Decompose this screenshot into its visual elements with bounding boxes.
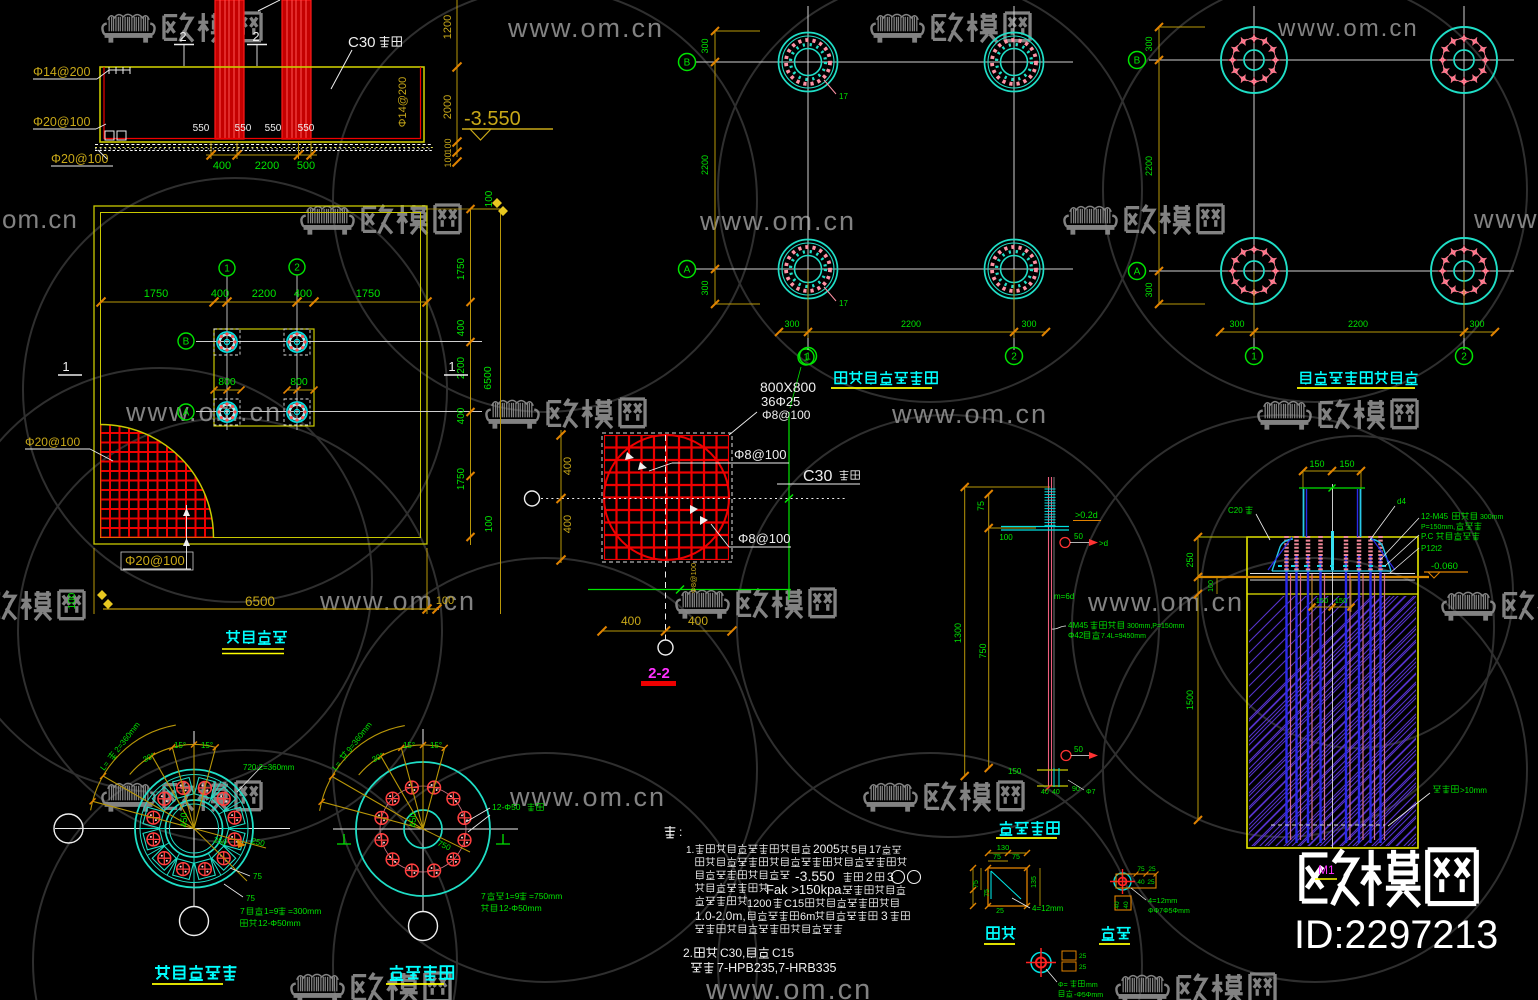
svg-text:P=150mm,: P=150mm, [1421,524,1455,531]
svg-text:300mm: 300mm [1480,514,1504,521]
svg-text:550: 550 [193,123,210,134]
svg-text:300: 300 [784,319,799,329]
svg-text:A: A [1134,267,1141,278]
svg-text:400: 400 [456,319,467,336]
svg-text:36Φ25: 36Φ25 [761,394,800,409]
svg-text:Φ20@100: Φ20@100 [33,115,90,129]
svg-text:www.om.cn: www.om.cn [705,974,872,1000]
svg-text:P.C: P.C [1421,532,1434,541]
svg-text:300: 300 [700,38,710,53]
svg-text:400: 400 [562,515,574,533]
svg-text:2005: 2005 [813,842,840,856]
svg-text:www.om.cn: www.om.cn [507,13,664,43]
svg-text:www.om.cn: www.om.cn [1087,587,1244,617]
svg-text:1750: 1750 [456,467,467,490]
svg-text:A: A [183,408,190,419]
svg-text:Φ8@100: Φ8@100 [734,447,787,462]
svg-text:1: 1 [224,264,230,275]
svg-text:Φ8@100: Φ8@100 [689,563,698,593]
svg-text:4=12mm: 4=12mm [1148,896,1177,905]
svg-text:550: 550 [235,123,252,134]
svg-text:25: 25 [1079,953,1087,960]
svg-text:550: 550 [265,123,282,134]
svg-text:=750mm: =750mm [529,891,562,901]
svg-text:1200: 1200 [747,898,771,910]
svg-text:1500: 1500 [1185,690,1195,710]
svg-text:400: 400 [688,614,708,628]
svg-text:300: 300 [1229,319,1244,329]
svg-text:800: 800 [218,376,236,388]
svg-text:2000: 2000 [442,95,454,119]
svg-text:www.om.cn: www.om.cn [1473,204,1538,234]
svg-text:1: 1 [1251,352,1257,363]
svg-text:1: 1 [448,359,455,374]
svg-text:Φ14@200: Φ14@200 [397,77,409,128]
svg-text:40: 40 [1114,901,1121,909]
svg-text:150: 150 [1309,459,1324,469]
svg-text:400: 400 [621,614,641,628]
svg-text:1: 1 [805,352,811,363]
svg-text:2200: 2200 [255,160,279,172]
svg-text:400: 400 [294,288,312,300]
svg-text:75: 75 [253,872,262,881]
svg-text:C15: C15 [772,946,794,960]
svg-text:www.om.cn: www.om.cn [699,206,856,236]
svg-text:1.0-2.0m,: 1.0-2.0m, [695,909,746,923]
svg-text:www.om.cn: www.om.cn [1277,15,1419,42]
svg-text:6500: 6500 [245,594,275,609]
svg-text:B: B [183,337,190,348]
svg-text:75: 75 [984,889,991,897]
svg-text:C15: C15 [784,898,804,910]
svg-text:12-M45: 12-M45 [1421,512,1449,521]
svg-text:Φ14@200: Φ14@200 [33,65,90,79]
svg-text:Φ8@100: Φ8@100 [762,408,811,422]
svg-text:12-Φ50mm: 12-Φ50mm [258,918,301,928]
svg-text:mm: mm [1086,982,1098,989]
svg-text:Φ20@100: Φ20@100 [125,553,185,568]
svg-text:>d: >d [1099,539,1108,548]
svg-text:=300mm: =300mm [288,906,321,916]
svg-text:75: 75 [973,880,980,888]
svg-text:300: 300 [1144,36,1154,51]
svg-text:15°: 15° [201,741,213,750]
svg-text:40: 40 [1052,789,1060,796]
svg-text:1750: 1750 [356,288,380,300]
svg-text:Φ8@100: Φ8@100 [738,531,791,546]
svg-text:50: 50 [1074,532,1083,541]
svg-text:75: 75 [1012,854,1020,861]
svg-text:7-HPB235,7-HRB335: 7-HPB235,7-HRB335 [717,961,837,975]
svg-text:25: 25 [1147,879,1155,886]
svg-text:www.om.cn: www.om.cn [509,782,666,812]
svg-text:6m: 6m [800,911,815,923]
svg-text:300: 300 [1144,282,1154,297]
svg-text:75: 75 [246,894,255,903]
svg-text:4=12mm: 4=12mm [1032,904,1064,913]
svg-text:Φ20@100: Φ20@100 [51,152,108,166]
svg-text:550: 550 [298,123,315,134]
svg-text:2.: 2. [683,946,693,960]
svg-text:7: 7 [240,906,245,916]
svg-text:m=6d: m=6d [1054,592,1074,601]
svg-text:1=9: 1=9 [264,906,279,916]
svg-text:17: 17 [869,844,881,856]
svg-text:450: 450 [408,812,418,827]
svg-text:300: 300 [700,280,710,295]
svg-text:800: 800 [290,376,308,388]
svg-text:2-2: 2-2 [648,665,670,682]
svg-text:150: 150 [1335,596,1348,605]
svg-text:2: 2 [179,29,186,44]
svg-text:7: 7 [481,891,486,901]
svg-text:C30: C30 [803,468,832,485]
svg-text:15°: 15° [174,741,186,750]
svg-text:1=9: 1=9 [505,891,520,901]
svg-text:ΦΦ7Φ5Φmm: ΦΦ7Φ5Φmm [1148,908,1190,915]
svg-text::: : [679,825,682,839]
svg-text:25: 25 [1148,866,1156,873]
svg-text:100: 100 [443,152,453,167]
svg-text:15°: 15° [430,741,442,750]
svg-text:om.cn: om.cn [2,204,78,234]
svg-text:Φ7: Φ7 [1086,789,1096,796]
svg-text:800X800: 800X800 [760,379,816,395]
svg-text:A: A [684,265,691,276]
svg-text:50: 50 [1074,745,1083,754]
svg-text:400: 400 [213,160,231,172]
svg-text:100: 100 [484,190,495,207]
svg-text:Φ=: Φ= [1058,982,1068,989]
svg-text:-Φ5Φmm: -Φ5Φmm [1074,992,1103,999]
svg-text:2200: 2200 [700,155,710,175]
svg-text:2200: 2200 [901,319,921,329]
svg-text:3: 3 [881,909,888,923]
svg-text:400: 400 [562,457,574,475]
svg-text:2: 2 [1461,352,1467,363]
svg-text:400: 400 [456,407,467,424]
svg-text:15°: 15° [403,741,415,750]
svg-text:25: 25 [1079,964,1087,971]
svg-text:12-Φ50mm: 12-Φ50mm [499,903,542,913]
svg-text:2200: 2200 [252,288,276,300]
svg-text:150: 150 [1339,459,1354,469]
svg-text:>10mm: >10mm [1460,786,1487,795]
svg-text:100: 100 [436,595,454,607]
svg-text:100: 100 [67,592,78,609]
svg-text:www.om.cn: www.om.cn [125,397,282,427]
svg-text:4M45: 4M45 [1068,621,1089,630]
svg-text:12-Φ50: 12-Φ50 [492,802,521,812]
svg-text:Φ20@100: Φ20@100 [25,435,80,449]
svg-text:250: 250 [1185,552,1195,567]
svg-text:1300: 1300 [953,623,963,643]
svg-text:1750: 1750 [144,288,168,300]
svg-text:d4: d4 [1397,497,1406,506]
svg-text:www.om.cn: www.om.cn [891,399,1048,429]
svg-text:-3.550: -3.550 [464,108,521,130]
svg-text:Φ42: Φ42 [1068,631,1084,640]
svg-text:-0.060: -0.060 [1431,561,1458,572]
svg-text:135: 135 [1031,876,1038,888]
svg-text:500: 500 [297,160,315,172]
svg-text:1.: 1. [686,845,694,856]
svg-text:100: 100 [484,515,495,532]
svg-text:100: 100 [1208,580,1215,592]
svg-text:P12t2: P12t2 [1421,544,1442,553]
svg-text:40: 40 [1137,879,1145,886]
svg-text:2: 2 [252,29,259,44]
svg-text:ID:2297213: ID:2297213 [1294,913,1498,957]
svg-text:400: 400 [211,288,229,300]
svg-text:6500: 6500 [482,366,494,390]
svg-text:100: 100 [443,138,453,153]
svg-text:2200: 2200 [1144,156,1154,176]
svg-text:300mm,P=150mm: 300mm,P=150mm [1127,623,1185,630]
svg-text:2200: 2200 [1348,319,1368,329]
svg-text:2: 2 [1011,352,1017,363]
svg-text:300: 300 [1021,319,1036,329]
svg-text:40: 40 [1041,789,1049,796]
svg-text:1750: 1750 [456,257,467,280]
svg-text:100: 100 [999,533,1013,542]
svg-text:450: 450 [179,812,189,827]
svg-text:25: 25 [996,908,1004,915]
svg-text:75: 75 [993,854,1001,861]
svg-text:1: 1 [62,359,69,374]
svg-text:720:2=360mm: 720:2=360mm [243,763,295,772]
svg-text:17: 17 [839,299,848,308]
svg-text:7.4L=9450mm: 7.4L=9450mm [1101,633,1146,640]
svg-text:2: 2 [294,263,300,274]
svg-text:B: B [684,58,691,69]
svg-text:130: 130 [997,843,1010,852]
svg-text:300: 300 [1469,319,1484,329]
svg-text:C30: C30 [348,34,376,51]
svg-text:17: 17 [839,92,848,101]
svg-text:5: 5 [851,844,857,856]
svg-text:40: 40 [1123,901,1130,909]
svg-text:1200: 1200 [442,15,454,39]
svg-text:2: 2 [866,870,873,884]
svg-text:75: 75 [976,501,986,511]
svg-text:B: B [1134,56,1141,67]
svg-text:75: 75 [1137,866,1145,873]
svg-text:M1: M1 [1318,863,1335,877]
svg-text:750: 750 [978,643,988,658]
svg-text:C20: C20 [1228,506,1243,515]
svg-text:C30,: C30, [720,946,745,960]
svg-text:150: 150 [1008,767,1022,776]
svg-text:>0.2d: >0.2d [1075,510,1098,520]
svg-text:150: 150 [1316,596,1329,605]
svg-text:Fak >150kpa.: Fak >150kpa. [766,882,845,897]
